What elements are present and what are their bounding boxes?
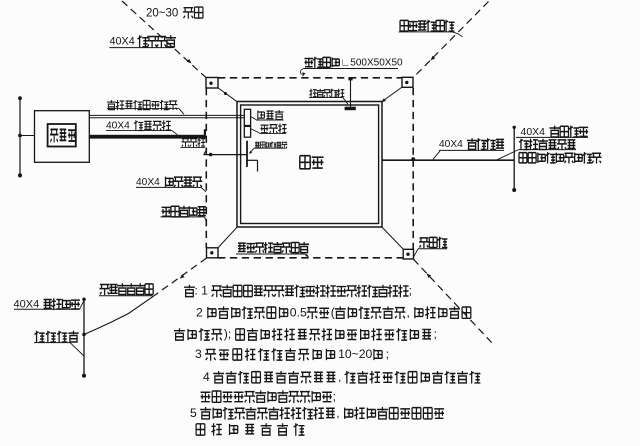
svg-text:5: 5 <box>190 406 197 420</box>
svg-text:;: ; <box>409 284 412 298</box>
svg-text:40X4: 40X4 <box>106 121 130 132</box>
svg-text:: 1: : 1 <box>194 284 208 298</box>
svg-text:,: , <box>338 370 341 384</box>
svg-text:40X4: 40X4 <box>136 177 160 188</box>
svg-text:40X4: 40X4 <box>439 139 463 150</box>
svg-text:40X4: 40X4 <box>521 126 546 138</box>
svg-text:20~30: 20~30 <box>146 8 178 20</box>
svg-text:4: 4 <box>203 370 210 384</box>
svg-text:40X4: 40X4 <box>110 36 135 48</box>
svg-text:,: , <box>336 406 339 420</box>
svg-text:;: ; <box>333 389 336 403</box>
svg-text:0.5: 0.5 <box>290 305 307 319</box>
svg-text:);: ); <box>224 327 231 341</box>
svg-text:∟500X50X50: ∟500X50X50 <box>341 58 403 69</box>
svg-text:3: 3 <box>195 347 202 361</box>
svg-text:2: 2 <box>196 305 203 319</box>
svg-text:;: ; <box>434 327 437 341</box>
svg-text:10~20: 10~20 <box>338 347 372 361</box>
svg-text:40X4: 40X4 <box>14 299 40 311</box>
svg-text:,: , <box>407 305 410 319</box>
svg-text:;: ; <box>386 347 389 361</box>
svg-text:(: ( <box>331 305 335 319</box>
